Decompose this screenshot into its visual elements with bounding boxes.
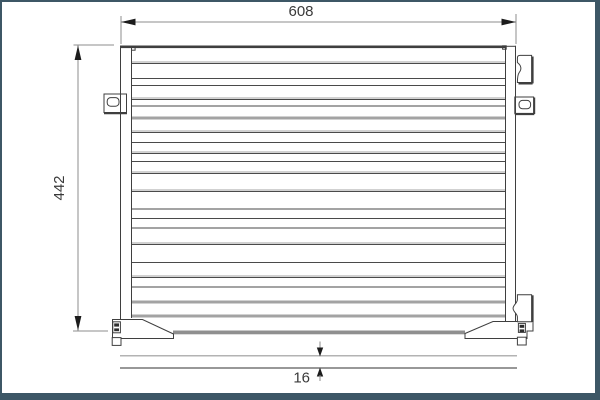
fin-line [132,244,506,245]
bottom-tube [173,331,465,335]
depth-dimension-label: 16 [293,370,310,387]
right-foot-pad [517,337,526,345]
depth-dimension: 16 [293,342,323,387]
fin-line [132,99,506,100]
width-dimension: 608 [121,3,516,44]
fin-line [132,85,506,86]
fin-line [132,190,506,191]
fin-line [132,161,506,162]
right-foot-clip-bar [520,325,525,328]
condenser-core-fins [132,62,506,318]
fin-line [132,286,506,288]
left-foot-clip-bar [114,323,119,326]
side-profile-view [120,356,517,368]
border-left [0,0,2,400]
fin-line [132,243,506,244]
fin-line [132,262,506,263]
border-top [0,0,600,2]
fin-line [132,132,506,133]
top-header-bar [121,46,506,49]
depth-arrow-down [317,348,323,357]
width-dimension-label: 608 [288,3,313,20]
fin-line [132,315,506,318]
mounting-brackets [104,94,534,114]
drawing-frame: 608 442 16 [0,0,600,400]
height-dimension-label: 442 [51,175,68,200]
height-dimension: 442 [51,45,114,331]
tank-edges [121,46,516,322]
fin-line [132,172,506,173]
fin-line [132,131,506,132]
left-bracket-slot [107,98,119,107]
width-arrow-left [121,19,136,26]
fin-line [132,153,506,154]
fin-line [132,62,506,63]
page-border [0,0,600,400]
fin-line [132,277,506,278]
fin-line [132,208,506,210]
right-bracket-slot [519,100,531,108]
height-arrow-top [75,46,82,61]
fin-line [132,78,506,79]
fin-line [132,98,506,99]
right-foot-clip-bar [520,329,525,332]
fin-line [132,105,506,107]
border-right [595,0,600,400]
fin-line [132,63,506,64]
fin-line [132,142,506,143]
fin-line [132,173,506,174]
width-arrow-right [502,19,517,26]
border-bottom [0,393,600,400]
fin-line [132,117,506,120]
fin-line [132,276,506,277]
left-foot-pad [112,338,121,346]
upper-pipe-connector [517,55,531,82]
left-foot [113,320,174,339]
condenser-technical-drawing: 608 442 16 [0,0,600,400]
height-arrow-bottom [75,316,82,331]
fin-line [132,301,506,304]
left-foot-clip-bar [114,328,119,331]
pipe-connectors [513,55,533,321]
fin-line [132,191,506,192]
fin-line [132,227,506,229]
fin-line [132,152,506,153]
fin-line [132,218,506,219]
